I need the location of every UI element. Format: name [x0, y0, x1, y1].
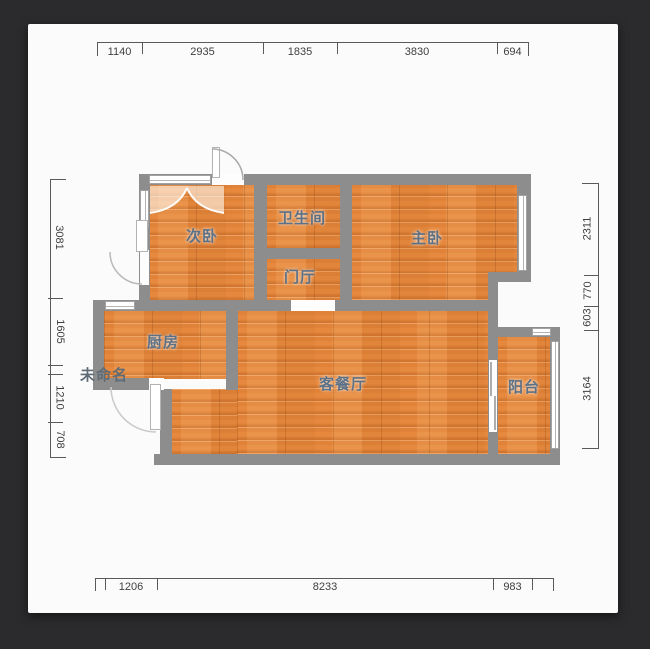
- label-secondary-bedroom: 次卧: [172, 225, 232, 246]
- window-balcony-top: [532, 328, 551, 336]
- window-kitchen: [105, 301, 135, 310]
- dim-tick: [95, 578, 96, 591]
- sliding-panel-2: [494, 396, 496, 430]
- label-balcony: 阳台: [497, 376, 551, 397]
- dim-label-right-3: 603: [582, 306, 595, 330]
- door-leaf-secondary-bedroom: [136, 220, 148, 252]
- door-leaf-unnamed: [150, 384, 161, 430]
- dim-label-top-2: 2935: [142, 46, 263, 59]
- dim-label-bottom-1: 1206: [105, 581, 157, 594]
- wall-master-notch-horizontal: [497, 272, 531, 282]
- window-balcony-right: [551, 341, 559, 449]
- dim-tick: [48, 365, 63, 366]
- dim-line-right: [598, 183, 599, 448]
- label-bathroom: 卫生间: [274, 207, 330, 228]
- wall-bathroom-master: [340, 183, 352, 301]
- dim-label-top-5: 694: [497, 46, 528, 59]
- wall-master-notch-vertical: [488, 272, 498, 311]
- dim-tick: [532, 578, 533, 590]
- dim-label-left-2: 1605: [53, 298, 66, 365]
- window-secondary-bedroom-top: [149, 175, 211, 184]
- dim-label-top-4: 3830: [337, 46, 497, 59]
- opening-foyer-living: [291, 300, 335, 311]
- dim-label-left-3: 1210: [53, 374, 66, 422]
- wall-living-left: [160, 389, 172, 455]
- dim-line-bottom: [95, 578, 553, 579]
- dim-tick: [582, 448, 599, 449]
- dim-line-left: [50, 179, 51, 457]
- dim-label-right-4: 3164: [582, 330, 595, 448]
- dim-tick: [528, 42, 529, 56]
- dim-label-right-2: 770: [582, 275, 595, 306]
- wall-kitchen-right: [226, 310, 238, 390]
- floor-master-bedroom-lower: [351, 273, 497, 302]
- dim-label-left-1: 3081: [52, 178, 65, 297]
- sliding-panel-1: [490, 362, 492, 396]
- wall-bedroom-bathroom: [254, 183, 267, 301]
- wall-bottom: [154, 454, 560, 465]
- window-master-bedroom: [518, 195, 527, 271]
- label-foyer: 门厅: [270, 266, 330, 287]
- label-kitchen: 厨房: [133, 331, 193, 352]
- dim-label-top-1: 1140: [97, 46, 142, 59]
- label-master-bedroom: 主卧: [397, 227, 457, 248]
- dim-label-bottom-2: 8233: [157, 581, 493, 594]
- label-unnamed: 未命名: [78, 364, 130, 385]
- dim-line-top: [97, 42, 529, 43]
- floor-living-dining-left: [171, 389, 237, 455]
- dim-label-bottom-3: 983: [493, 581, 532, 594]
- dim-label-top-3: 1835: [263, 46, 337, 59]
- door-leaf-entry: [212, 147, 220, 178]
- opening-secondary-bedroom-door: [140, 250, 149, 285]
- dim-label-right-1: 2311: [582, 183, 595, 275]
- dim-tick: [50, 457, 66, 458]
- dim-label-left-4: 708: [53, 422, 66, 457]
- wall-bathroom-foyer: [266, 248, 341, 259]
- dim-tick: [553, 578, 554, 591]
- label-living-dining: 客餐厅: [313, 373, 373, 394]
- floor-plan-page: 次卧 卫生间 主卧 门厅 厨房 客餐厅 阳台 未命名 1140 2935 183…: [0, 0, 650, 649]
